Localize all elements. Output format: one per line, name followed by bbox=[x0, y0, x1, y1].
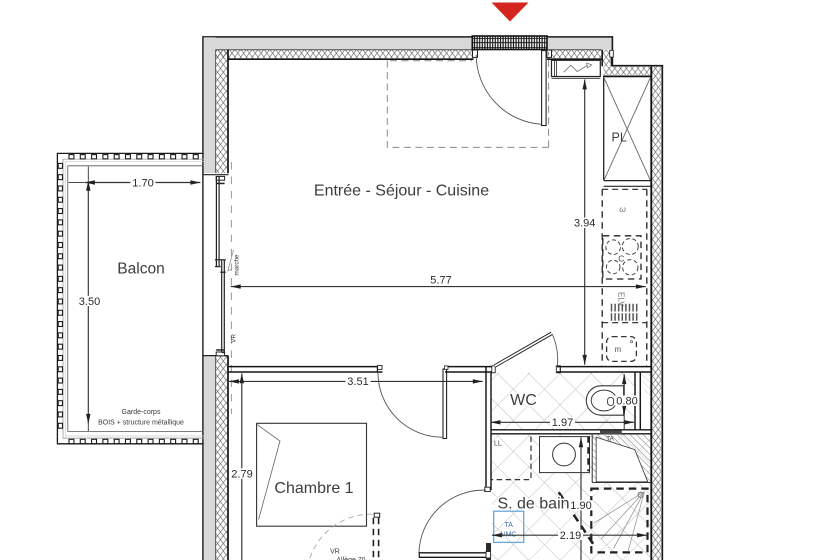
svg-text:1.97: 1.97 bbox=[552, 417, 573, 429]
svg-text:5.77: 5.77 bbox=[430, 274, 451, 286]
svg-text:1.90: 1.90 bbox=[570, 500, 591, 512]
svg-text:TA: TA bbox=[504, 522, 513, 529]
svg-text:3.94: 3.94 bbox=[574, 218, 595, 230]
svg-text:VR: VR bbox=[231, 334, 238, 343]
svg-text:ω: ω bbox=[619, 204, 626, 214]
svg-text:C: C bbox=[618, 254, 624, 264]
svg-text:LL: LL bbox=[494, 441, 502, 448]
svg-text:BOIS + structure métallique: BOIS + structure métallique bbox=[98, 420, 184, 427]
svg-text:S. de bain: S. de bain bbox=[497, 496, 569, 513]
svg-text:VR: VR bbox=[330, 549, 340, 556]
svg-text:3.50: 3.50 bbox=[79, 296, 100, 308]
svg-text:Garde-corps: Garde-corps bbox=[122, 409, 161, 416]
svg-text:Entrée - Séjour - Cuisine: Entrée - Séjour - Cuisine bbox=[314, 183, 489, 200]
svg-text:Balcon: Balcon bbox=[117, 261, 164, 278]
svg-text:PL: PL bbox=[612, 131, 627, 145]
svg-text:ELV: ELV bbox=[617, 292, 626, 307]
svg-text:WC: WC bbox=[510, 392, 537, 409]
svg-text:marche: marche bbox=[234, 254, 241, 275]
svg-text:Chambre 1: Chambre 1 bbox=[274, 480, 353, 497]
svg-text:3.51: 3.51 bbox=[347, 376, 368, 388]
svg-text:0.80: 0.80 bbox=[616, 396, 637, 408]
svg-text:m: m bbox=[615, 345, 622, 354]
svg-text:1.70: 1.70 bbox=[132, 177, 153, 189]
svg-text:2.19: 2.19 bbox=[560, 530, 581, 542]
svg-text:2.79: 2.79 bbox=[231, 468, 252, 480]
